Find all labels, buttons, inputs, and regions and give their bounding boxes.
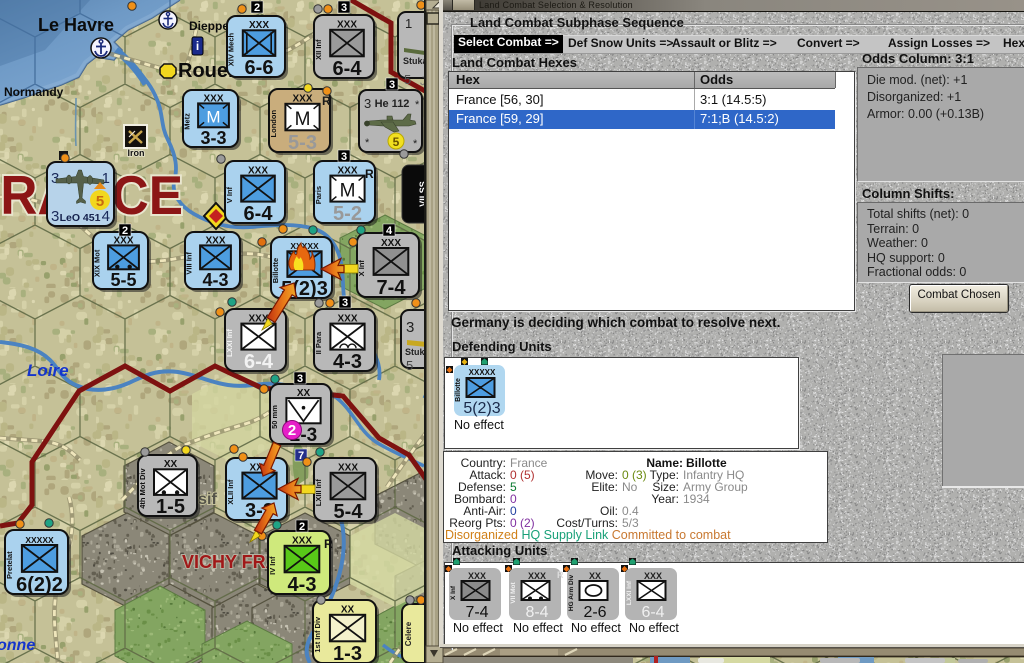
svg-text:5: 5 <box>406 358 413 373</box>
svg-text:Celere: Celere <box>404 621 413 646</box>
svg-text:M: M <box>340 180 356 201</box>
svg-text:4: 4 <box>386 225 393 237</box>
svg-text:Iron: Iron <box>128 148 145 158</box>
svg-text:XX: XX <box>589 571 601 581</box>
svg-text:M: M <box>206 108 220 127</box>
svg-text:V Inf: V Inf <box>225 186 234 203</box>
svg-text:3: 3 <box>364 96 371 111</box>
svg-text:XXXXX: XXXXX <box>469 368 496 377</box>
svg-text:Loire: Loire <box>27 361 69 380</box>
svg-text:6-6: 6-6 <box>245 57 274 79</box>
svg-text:1st Inf Div: 1st Inf Div <box>313 616 322 653</box>
svg-text:5: 5 <box>96 193 104 210</box>
svg-text:3: 3 <box>389 79 395 91</box>
svg-text:Billotte: Billotte <box>271 258 280 283</box>
svg-text:5(2)3: 5(2)3 <box>463 400 500 417</box>
svg-text:LXXI Inf: LXXI Inf <box>225 329 234 357</box>
svg-text:XXXXX: XXXXX <box>25 535 54 545</box>
svg-text:2: 2 <box>122 225 128 237</box>
svg-text:VII Mot: VII Mot <box>510 582 517 604</box>
svg-text:*: * <box>365 137 370 149</box>
svg-text:5-3: 5-3 <box>288 132 317 154</box>
svg-text:Metz: Metz <box>182 113 191 130</box>
svg-text:7-4: 7-4 <box>465 604 488 621</box>
svg-text:50 mm: 50 mm <box>270 405 279 429</box>
svg-text:2: 2 <box>254 2 260 14</box>
svg-text:R: R <box>365 167 374 181</box>
svg-text:XIV Mech: XIV Mech <box>227 33 236 67</box>
svg-text:4-3: 4-3 <box>202 270 228 290</box>
svg-text:6-4: 6-4 <box>333 58 363 80</box>
svg-text:IV Inf: IV Inf <box>268 556 277 575</box>
svg-text:5: 5 <box>393 135 400 149</box>
svg-text:VIII Inf: VIII Inf <box>184 252 193 275</box>
svg-text:2: 2 <box>299 521 305 533</box>
svg-text:X Inf: X Inf <box>357 260 366 277</box>
svg-text:1: 1 <box>405 16 412 31</box>
svg-text:XXX: XXX <box>528 571 546 581</box>
svg-text:XIX Mot: XIX Mot <box>92 249 101 277</box>
svg-text:He 112: He 112 <box>375 98 410 110</box>
svg-text:XXX: XXX <box>468 571 486 581</box>
svg-text:i: i <box>196 39 199 53</box>
svg-text:II Para: II Para <box>314 331 323 354</box>
svg-text:8-4: 8-4 <box>525 604 548 621</box>
svg-text:4-3: 4-3 <box>333 351 362 373</box>
svg-text:VICHY FRA: VICHY FRA <box>182 552 279 572</box>
svg-text:2-6: 2-6 <box>583 604 606 621</box>
svg-text:6-4: 6-4 <box>641 604 664 621</box>
svg-text:X Inf: X Inf <box>450 585 457 600</box>
svg-text:Normandy: Normandy <box>4 85 64 99</box>
svg-text:3: 3 <box>341 151 347 163</box>
svg-text:5-5: 5-5 <box>110 270 136 290</box>
svg-text:*: * <box>415 99 420 111</box>
svg-text:2: 2 <box>288 422 296 439</box>
svg-text:Paris: Paris <box>314 186 323 204</box>
svg-text:1-3: 1-3 <box>333 643 362 663</box>
svg-text:1: 1 <box>102 170 110 187</box>
svg-text:1-5: 1-5 <box>156 496 185 518</box>
svg-text:4: 4 <box>102 208 110 225</box>
svg-text:7-4: 7-4 <box>377 277 407 299</box>
svg-text:M: M <box>295 109 311 130</box>
svg-text:R: R <box>324 537 333 551</box>
svg-text:*: * <box>413 138 418 150</box>
svg-text:XLII Inf: XLII Inf <box>226 479 235 505</box>
svg-text:Le Havre: Le Havre <box>38 15 114 35</box>
svg-text:3: 3 <box>341 2 347 14</box>
svg-text:LXXI Inf: LXXI Inf <box>626 580 633 605</box>
svg-text:5: 5 <box>404 72 411 87</box>
svg-text:6(2)2: 6(2)2 <box>16 574 63 596</box>
svg-text:4-3: 4-3 <box>288 574 317 596</box>
svg-text:HG Arm Div: HG Arm Div <box>568 575 575 612</box>
svg-text:London: London <box>269 110 278 138</box>
svg-text:5-4: 5-4 <box>334 501 364 523</box>
svg-text:Dieppe: Dieppe <box>189 19 229 33</box>
svg-text:XII Inf: XII Inf <box>314 39 323 60</box>
svg-text:onne: onne <box>0 637 35 654</box>
svg-text:3: 3 <box>51 208 59 225</box>
svg-text:3: 3 <box>342 297 348 309</box>
svg-text:LXIII Inf: LXIII Inf <box>314 479 323 507</box>
svg-text:6-4: 6-4 <box>244 351 274 373</box>
svg-text:Billotte: Billotte <box>455 378 462 402</box>
svg-text:4th Mot Div: 4th Mot Div <box>138 468 147 509</box>
svg-text:6-4: 6-4 <box>244 203 274 225</box>
svg-text:3-3: 3-3 <box>200 128 226 148</box>
svg-text:LeO 451: LeO 451 <box>60 212 101 224</box>
svg-text:Pretelat: Pretelat <box>5 551 14 579</box>
svg-text:XXX: XXX <box>644 571 662 581</box>
svg-text:3: 3 <box>406 319 414 336</box>
svg-text:5-2: 5-2 <box>333 203 362 225</box>
svg-text:3: 3 <box>297 373 303 385</box>
svg-text:R: R <box>322 94 331 108</box>
